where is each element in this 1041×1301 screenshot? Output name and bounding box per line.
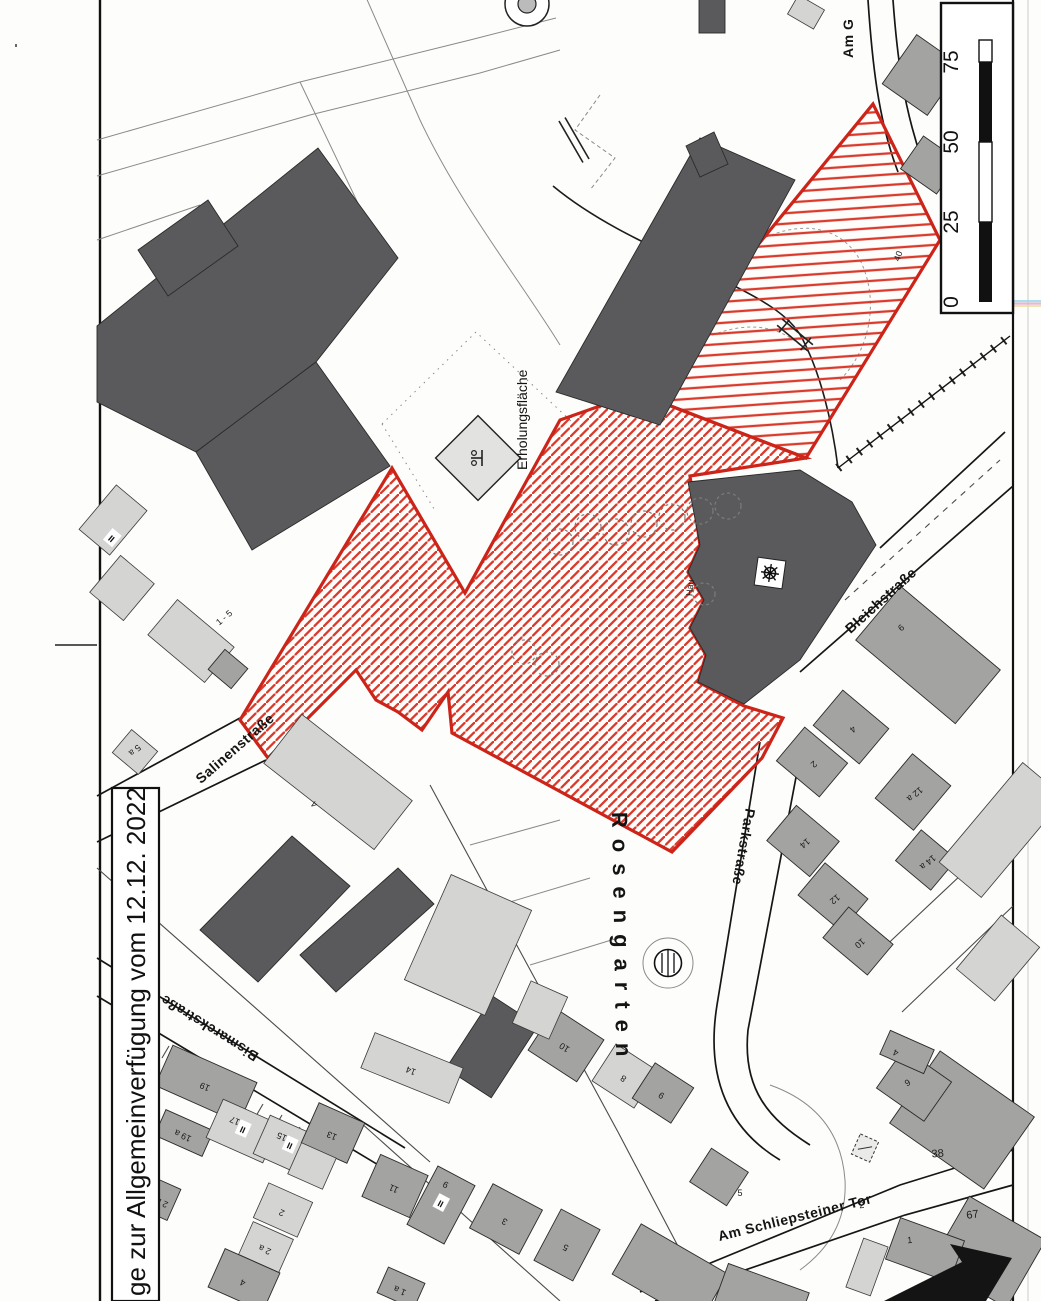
scale-tick-50: 50 bbox=[940, 130, 963, 153]
house-number: 67 bbox=[966, 1208, 980, 1222]
scale-segment-25-50 bbox=[979, 142, 992, 222]
parcel-label: Hau bbox=[684, 579, 695, 596]
scale-segment-50-75 bbox=[979, 62, 992, 142]
annotation-box: ge zur Allgemeinverfügung vom 12.12. 202… bbox=[112, 787, 159, 1301]
gear-symbol bbox=[754, 557, 786, 589]
label-erholungsflaeche: Erholungsfläche bbox=[514, 369, 530, 470]
scale-tick-0: 0 bbox=[940, 296, 963, 308]
scan-speck bbox=[15, 44, 17, 47]
building bbox=[699, 0, 725, 33]
label-rosengarten: Rosengarten bbox=[607, 812, 636, 1068]
scale-bar-box bbox=[941, 3, 1013, 313]
scale-tick-75: 75 bbox=[940, 50, 963, 73]
label-am-g: Am G bbox=[840, 19, 856, 58]
house-number: 1 bbox=[907, 1235, 913, 1245]
house-number: 5 bbox=[737, 1188, 742, 1198]
house-number: 38 bbox=[931, 1148, 944, 1161]
scale-segment-75-plus bbox=[979, 40, 992, 62]
scale-segment-0-25 bbox=[979, 222, 992, 302]
annotation-text: ge zur Allgemeinverfügung vom 12.12. 202… bbox=[121, 787, 151, 1296]
scale-tick-25: 25 bbox=[940, 210, 963, 233]
scale-bar: 0 25 50 75 bbox=[940, 3, 1013, 313]
cadastral-map-scan: 64212 a14 a141210108959351919 a2 b171513… bbox=[0, 0, 1041, 1301]
